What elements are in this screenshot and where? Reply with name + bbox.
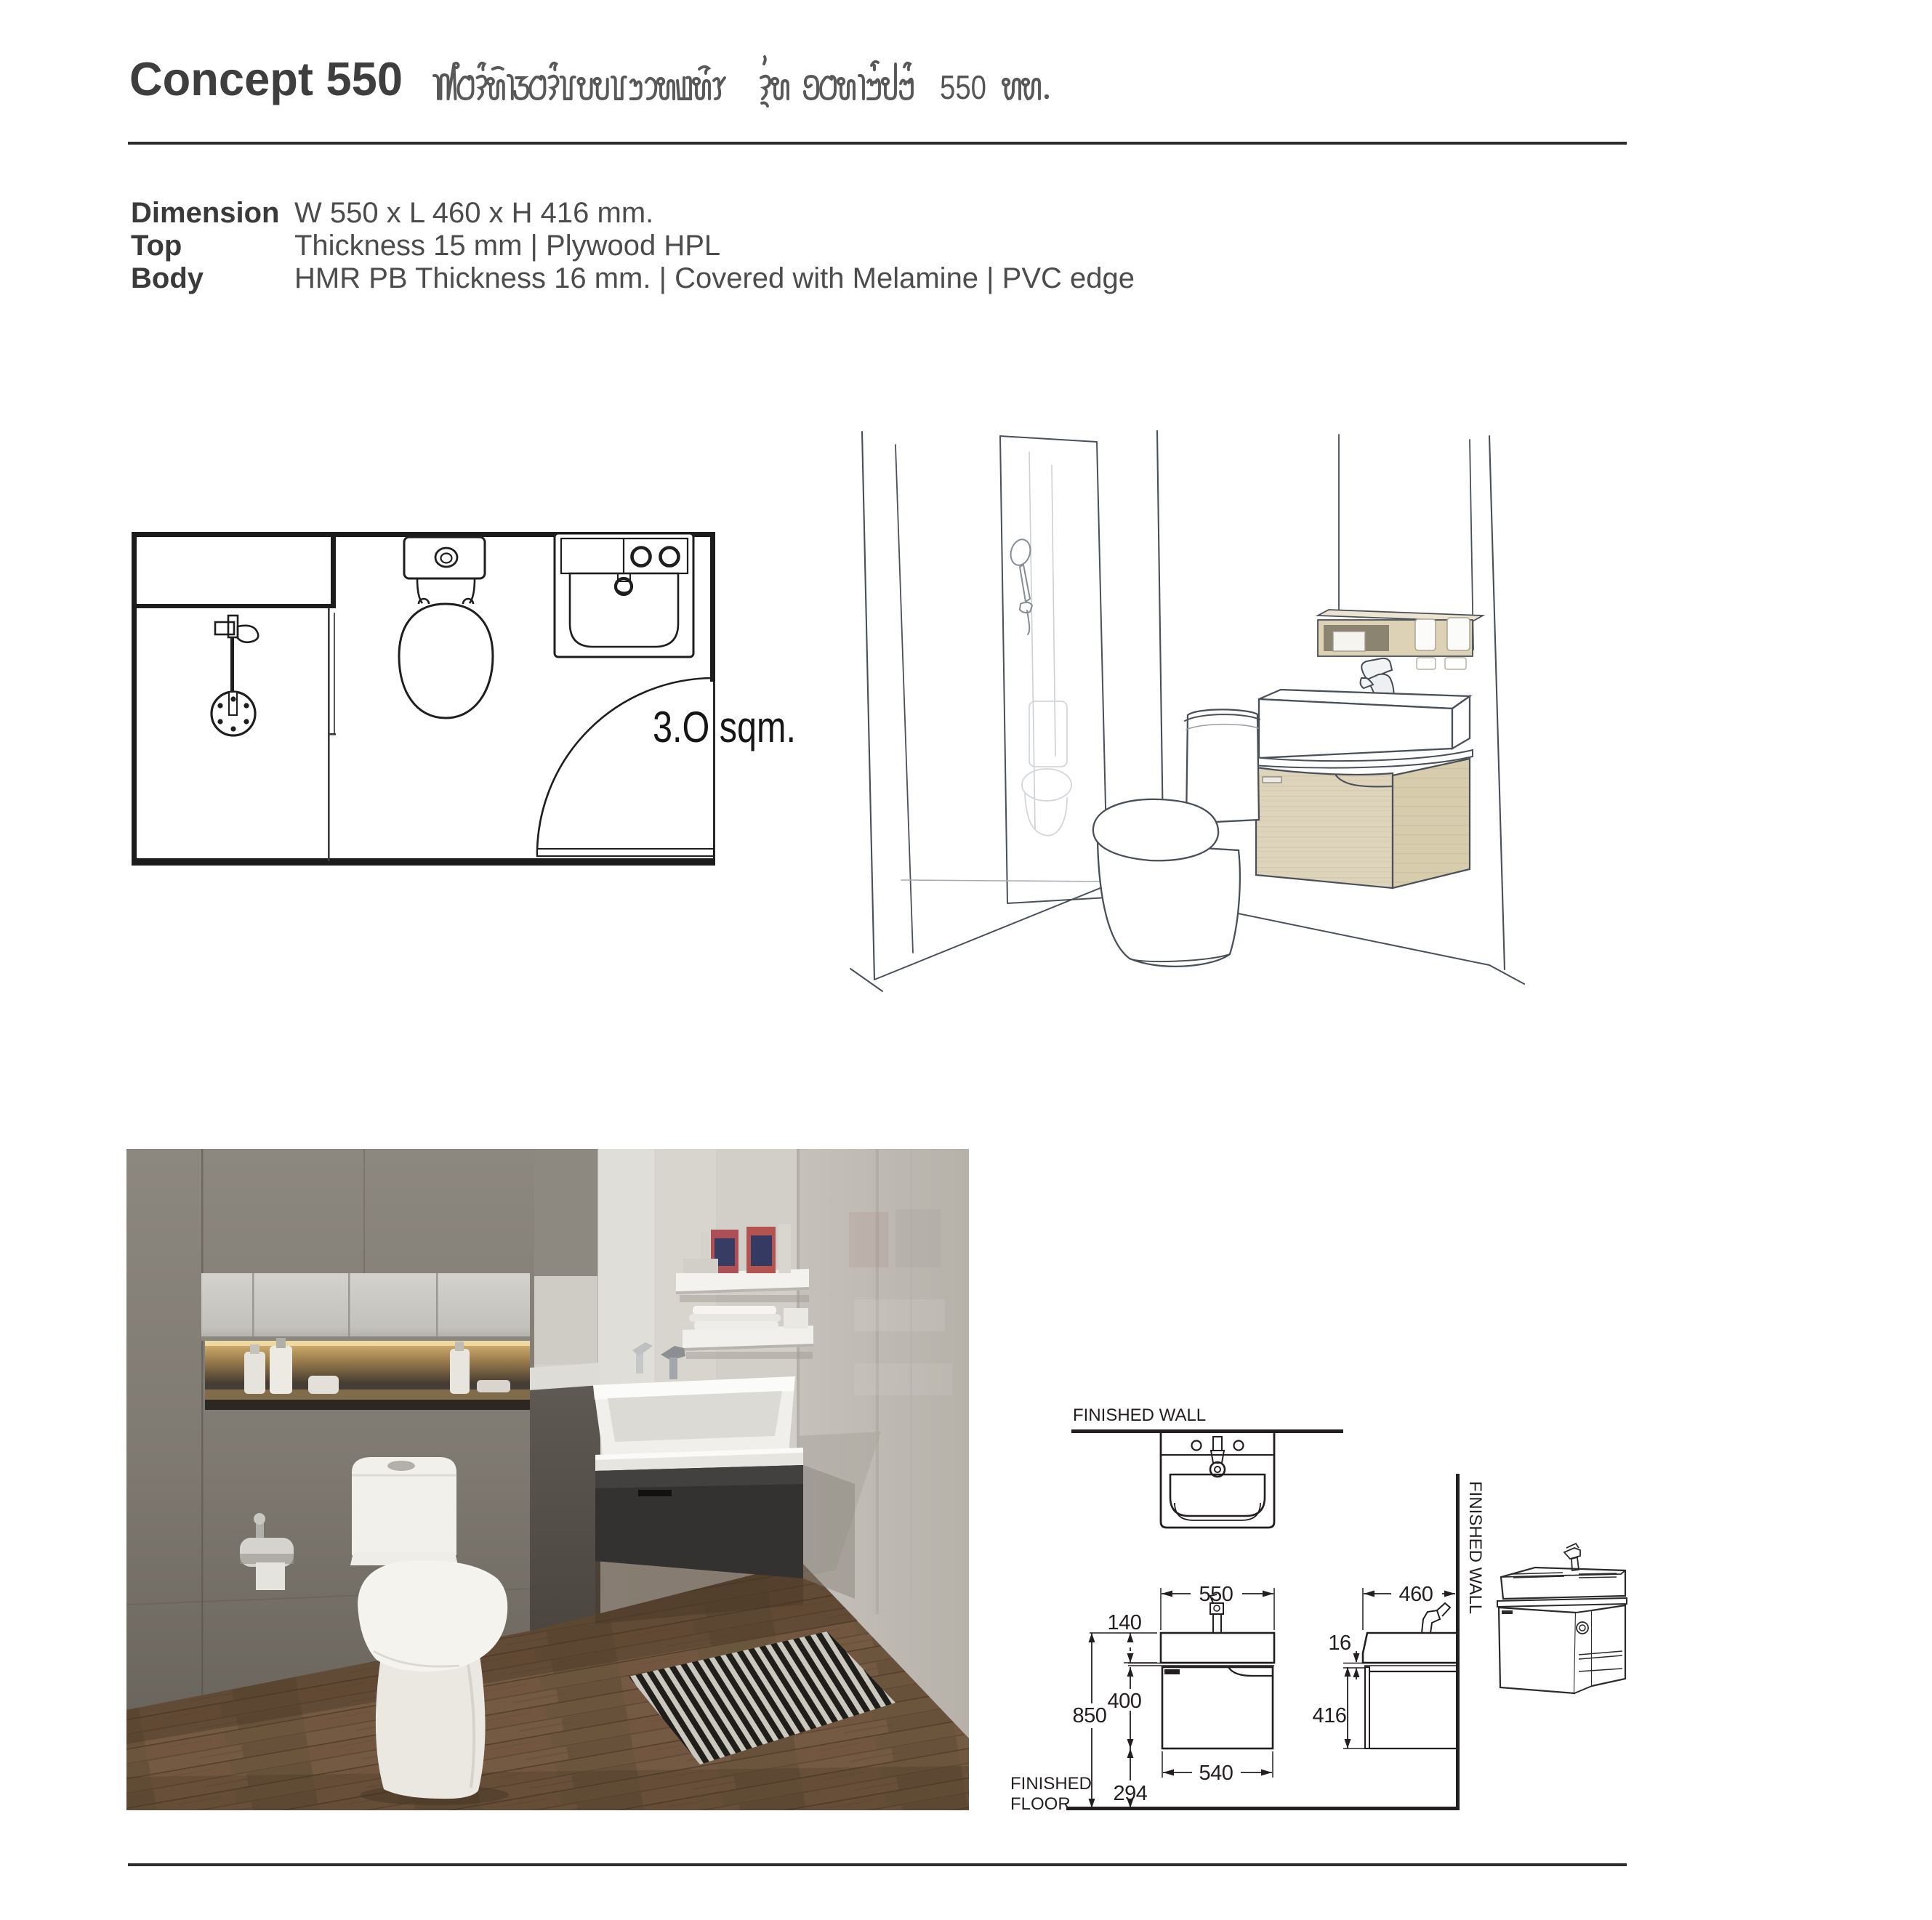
svg-text:550: 550 bbox=[940, 68, 986, 106]
svg-text:Concept 550: Concept 550 bbox=[129, 52, 403, 105]
svg-text:W 550 x L 460 x H 416 mm.: W 550 x L 460 x H 416 mm. bbox=[294, 197, 653, 229]
svg-text:Dimension: Dimension bbox=[131, 197, 279, 229]
svg-text:3.O sqm.: 3.O sqm. bbox=[653, 703, 796, 751]
svg-text:Top: Top bbox=[131, 230, 182, 262]
svg-text:FLOOR: FLOOR bbox=[1010, 1794, 1071, 1814]
svg-text:850: 850 bbox=[1073, 1704, 1107, 1727]
svg-text:Thickness 15 mm | Plywood HPL: Thickness 15 mm | Plywood HPL bbox=[294, 230, 720, 262]
svg-text:FINISHED WALL: FINISHED WALL bbox=[1465, 1481, 1485, 1614]
svg-text:460: 460 bbox=[1399, 1583, 1433, 1606]
svg-text:HMR PB Thickness 16 mm. | Cove: HMR PB Thickness 16 mm. | Covered with M… bbox=[294, 262, 1135, 294]
svg-text:16: 16 bbox=[1328, 1631, 1351, 1655]
svg-text:Body: Body bbox=[131, 262, 204, 294]
svg-text:400: 400 bbox=[1108, 1690, 1142, 1713]
svg-text:FINISHED: FINISHED bbox=[1010, 1774, 1092, 1794]
svg-text:540: 540 bbox=[1199, 1762, 1233, 1785]
svg-text:416: 416 bbox=[1313, 1704, 1347, 1727]
svg-text:140: 140 bbox=[1108, 1611, 1142, 1634]
svg-text:FINISHED WALL: FINISHED WALL bbox=[1073, 1405, 1206, 1425]
